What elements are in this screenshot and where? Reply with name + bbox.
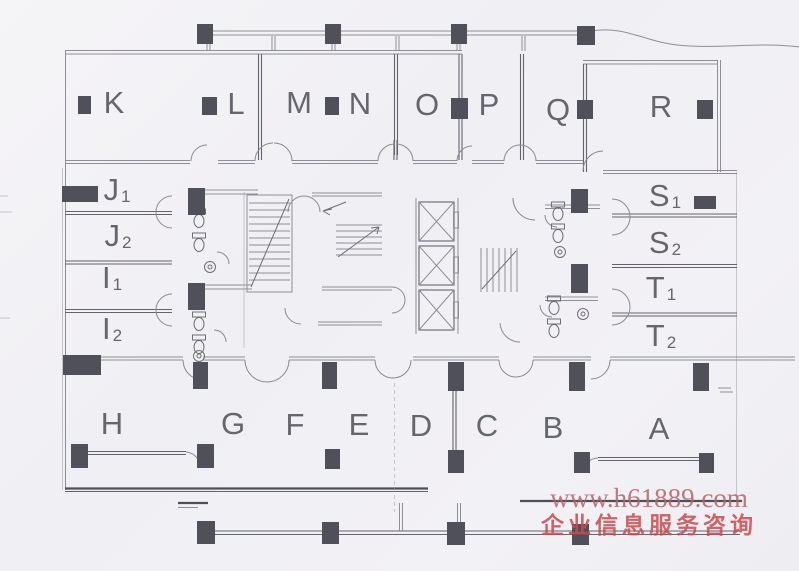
room-label-i2: I2 — [102, 311, 122, 347]
sink-icon — [194, 351, 205, 362]
room-label-s2-sub: 2 — [672, 240, 681, 259]
room-label-i1-base: I — [102, 260, 111, 295]
toilet-icon — [193, 233, 206, 252]
room-label-n: N — [349, 86, 371, 122]
room-label-s1-sub: 1 — [672, 193, 681, 212]
room-label-t2-base: T — [646, 318, 665, 353]
room-label-j2-sub: 2 — [122, 233, 131, 252]
watermark-caption: 企业信息服务咨询 — [540, 514, 758, 538]
washroom-fixtures — [193, 202, 589, 362]
room-label-s2-base: S — [649, 225, 670, 260]
column-markers — [62, 24, 716, 545]
room-label-s1-base: S — [649, 178, 670, 213]
toilet-icon — [193, 312, 206, 331]
scanned-floor-plan-page: K L M N O P Q R J1 J2 I1 I2 S1 S2 T1 T2 … — [0, 0, 799, 571]
room-label-q: Q — [546, 92, 570, 128]
scan-paper-edge-curve — [592, 30, 799, 47]
toilet-icon — [548, 296, 561, 315]
room-label-i1-sub: 1 — [113, 275, 122, 294]
room-label-i2-base: I — [102, 311, 111, 346]
room-label-e: E — [349, 407, 370, 443]
sink-icon — [205, 262, 216, 273]
room-label-k: K — [104, 85, 125, 121]
leader-arrow — [323, 202, 346, 215]
room-label-a: A — [649, 411, 670, 447]
core-walls — [205, 190, 600, 348]
room-label-g: G — [221, 406, 245, 442]
room-label-s1: S1 — [649, 178, 681, 214]
room-label-j1-base: J — [104, 172, 120, 207]
room-label-f: F — [286, 407, 305, 443]
room-label-t1-base: T — [646, 270, 665, 305]
room-label-o: O — [415, 87, 439, 123]
room-label-t2-sub: 2 — [667, 333, 676, 352]
room-label-b: B — [543, 410, 564, 446]
elevator-shafts — [419, 202, 459, 330]
room-label-d: D — [410, 408, 432, 444]
room-label-h: H — [101, 406, 123, 442]
room-label-t1: T1 — [646, 270, 676, 306]
room-label-j2-base: J — [105, 218, 121, 253]
sink-icon — [578, 309, 589, 320]
room-label-m: M — [286, 85, 312, 121]
room-label-t1-sub: 1 — [667, 285, 676, 304]
room-label-r: R — [650, 89, 672, 125]
room-label-i1: I1 — [102, 260, 122, 296]
room-label-j2: J2 — [105, 218, 132, 254]
toilet-icon — [548, 319, 561, 338]
partition-walls — [65, 54, 737, 512]
room-label-t2: T2 — [646, 318, 676, 354]
room-label-j1: J1 — [104, 172, 131, 208]
room-label-c: C — [476, 408, 498, 444]
room-label-l: L — [227, 86, 244, 122]
watermark: www.h61889.com 企业信息服务咨询 — [540, 484, 758, 538]
room-label-i2-sub: 2 — [113, 326, 122, 345]
room-label-s2: S2 — [649, 225, 681, 261]
sink-icon — [555, 247, 566, 258]
room-label-j1-sub: 1 — [121, 187, 130, 206]
stairs — [247, 195, 517, 292]
room-label-p: P — [479, 87, 500, 123]
watermark-url: www.h61889.com — [540, 484, 758, 512]
